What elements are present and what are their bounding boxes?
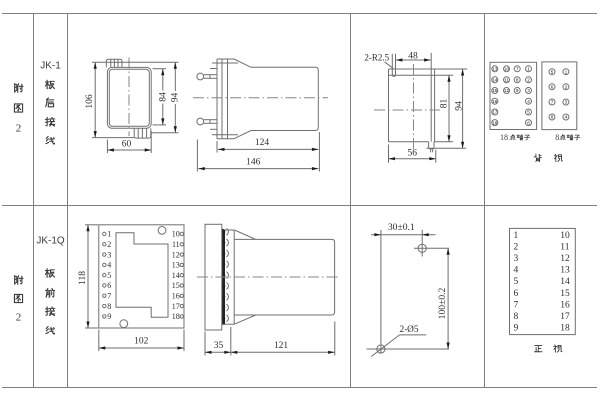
svg-text:17: 17	[172, 302, 180, 311]
svg-text:4: 4	[565, 115, 568, 120]
svg-text:1: 1	[107, 230, 111, 239]
svg-text:5: 5	[107, 271, 111, 280]
svg-text:9: 9	[516, 88, 519, 93]
svg-text:81: 81	[440, 99, 450, 109]
svg-text:9: 9	[514, 324, 519, 334]
svg-text:18: 18	[560, 324, 570, 334]
svg-text:1: 1	[565, 69, 568, 74]
svg-text:JK-1: JK-1	[40, 61, 61, 72]
svg-text:121: 121	[274, 341, 289, 351]
svg-text:13: 13	[560, 266, 570, 276]
svg-text:56: 56	[407, 149, 417, 159]
svg-text:10: 10	[172, 230, 180, 239]
svg-text:6: 6	[514, 289, 519, 299]
svg-text:8: 8	[555, 133, 559, 142]
svg-text:146: 146	[246, 157, 261, 167]
svg-text:106: 106	[85, 94, 95, 109]
svg-text:11: 11	[172, 240, 180, 249]
svg-text:6: 6	[107, 281, 111, 290]
svg-text:94: 94	[171, 93, 181, 103]
svg-text:18: 18	[492, 120, 498, 125]
svg-text:2: 2	[16, 123, 22, 135]
svg-text:2: 2	[16, 312, 22, 324]
svg-text:2: 2	[514, 242, 519, 252]
svg-text:JK-1Q: JK-1Q	[36, 236, 65, 247]
svg-text:14: 14	[492, 78, 498, 83]
svg-text:16: 16	[492, 99, 498, 104]
svg-text:3: 3	[565, 100, 568, 105]
svg-text:16: 16	[172, 292, 180, 301]
svg-text:9: 9	[107, 312, 111, 321]
svg-text:30±0.1: 30±0.1	[388, 222, 415, 233]
svg-text:17: 17	[492, 110, 498, 115]
svg-text:3: 3	[514, 254, 519, 264]
svg-text:12: 12	[504, 88, 510, 93]
svg-text:10: 10	[504, 67, 510, 72]
svg-text:1: 1	[514, 231, 519, 241]
svg-text:4: 4	[527, 99, 530, 104]
svg-text:5: 5	[551, 69, 554, 74]
svg-text:84: 84	[158, 92, 168, 102]
svg-text:12: 12	[560, 254, 570, 264]
svg-text:6: 6	[551, 85, 554, 90]
svg-text:15: 15	[492, 88, 498, 93]
svg-text:35: 35	[214, 341, 224, 351]
svg-text:7: 7	[551, 100, 554, 105]
svg-text:2: 2	[565, 85, 568, 90]
svg-text:60: 60	[122, 139, 132, 149]
svg-text:2-Ø5: 2-Ø5	[399, 325, 418, 335]
svg-text:94: 94	[454, 101, 464, 111]
svg-text:10: 10	[560, 231, 570, 241]
svg-text:11: 11	[504, 78, 509, 83]
svg-text:16: 16	[560, 300, 570, 310]
svg-text:2: 2	[107, 240, 111, 249]
svg-text:100±0.2: 100±0.2	[437, 287, 448, 319]
svg-text:15: 15	[172, 281, 180, 290]
svg-text:6: 6	[527, 120, 530, 125]
svg-text:13: 13	[492, 67, 498, 72]
svg-text:8: 8	[107, 302, 111, 311]
svg-text:7: 7	[107, 292, 111, 301]
svg-text:1: 1	[527, 67, 530, 72]
svg-text:7: 7	[514, 300, 519, 310]
svg-text:14: 14	[172, 271, 180, 280]
svg-text:17: 17	[560, 312, 570, 322]
svg-text:5: 5	[514, 277, 519, 287]
svg-text:4: 4	[107, 261, 111, 270]
svg-text:5: 5	[527, 110, 530, 115]
svg-text:102: 102	[134, 336, 149, 346]
svg-text:8: 8	[551, 115, 554, 120]
svg-text:4: 4	[514, 266, 519, 276]
svg-text:7: 7	[516, 67, 519, 72]
svg-text:3: 3	[107, 250, 111, 259]
svg-text:8: 8	[514, 312, 519, 322]
svg-text:18: 18	[172, 312, 180, 321]
svg-text:118: 118	[78, 271, 88, 285]
svg-text:14: 14	[560, 277, 570, 287]
svg-text:11: 11	[560, 242, 569, 252]
svg-text:18: 18	[500, 133, 508, 142]
svg-text:2-R2.5: 2-R2.5	[364, 53, 389, 63]
svg-text:8: 8	[516, 78, 519, 83]
svg-text:48: 48	[408, 52, 418, 62]
svg-text:13: 13	[172, 261, 180, 270]
svg-text:124: 124	[255, 138, 270, 148]
svg-text:2: 2	[527, 78, 530, 83]
svg-text:3: 3	[527, 88, 530, 93]
svg-text:15: 15	[560, 289, 570, 299]
svg-text:12: 12	[172, 250, 180, 259]
